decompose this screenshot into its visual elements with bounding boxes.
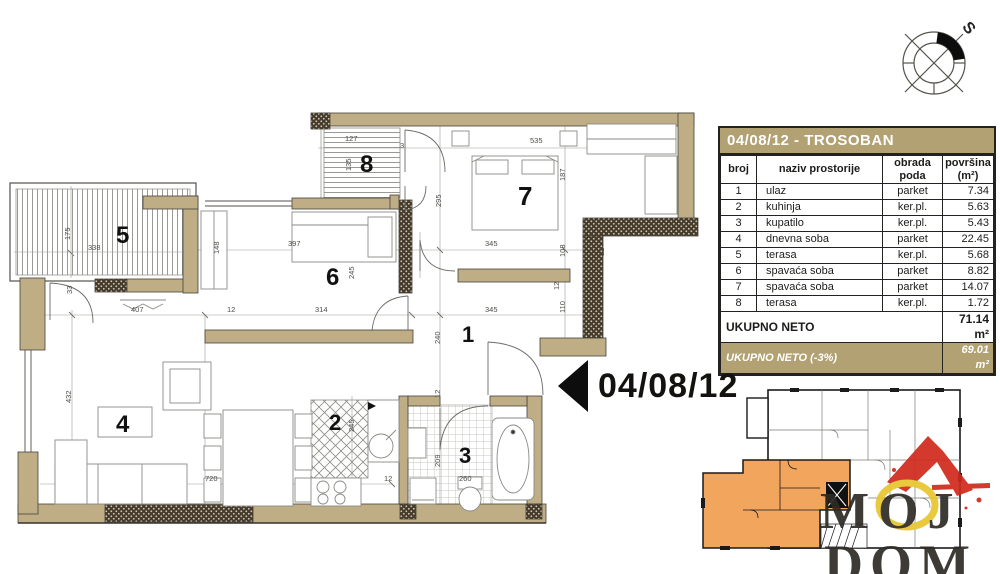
left-arrow-icon	[558, 360, 588, 412]
dim-label: 338	[88, 243, 101, 252]
total-value: 71.14 m²	[943, 312, 994, 343]
dim-label: 295	[434, 194, 443, 207]
room-label-6: 6	[326, 264, 339, 291]
cell-broj: 1	[721, 184, 757, 200]
table-row: 1 ulaz parket 7.34	[721, 184, 994, 200]
cell-povrsina: 22.45	[943, 232, 994, 248]
dim-label: 260	[459, 474, 472, 483]
cell-povrsina: 7.34	[943, 184, 994, 200]
cell-broj: 5	[721, 248, 757, 264]
dim-label: 535	[530, 136, 543, 145]
dim-label: 720	[205, 474, 218, 483]
cell-obrada: parket	[883, 280, 943, 296]
room-label-3: 3	[459, 443, 471, 468]
table-header-row: broj naziv prostorije obrada poda površi…	[721, 156, 994, 184]
room-label-4: 4	[116, 411, 130, 438]
cell-naziv: dnevna soba	[757, 232, 883, 248]
floor-plan: 1 2 3 4 5 6 7 8 175 338 33 407 12 314 34…	[0, 0, 710, 574]
dim-label: 345	[485, 239, 498, 248]
col-header-broj: broj	[721, 156, 757, 184]
cell-broj: 4	[721, 232, 757, 248]
cell-obrada: ker.pl.	[883, 200, 943, 216]
dim-label: 127	[345, 134, 358, 143]
net-label: UKUPNO NETO (-3%)	[721, 343, 943, 374]
table-row: 4 dnevna soba parket 22.45	[721, 232, 994, 248]
dim-label: 245	[347, 419, 356, 432]
dim-label: 240	[433, 331, 442, 344]
dim-label: 12	[597, 248, 606, 256]
room-label-5: 5	[116, 222, 129, 249]
table-row: 7 spavaća soba parket 14.07	[721, 280, 994, 296]
table-row: 2 kuhinja ker.pl. 5.63	[721, 200, 994, 216]
logo-line1: MOJ	[820, 483, 963, 540]
dim-label: 148	[212, 241, 221, 254]
dim-label: 187	[558, 168, 567, 181]
cell-obrada: parket	[883, 232, 943, 248]
dim-label: 12	[552, 282, 561, 290]
area-table: 04/08/12 - TROSOBAN broj naziv prostorij…	[718, 126, 996, 376]
dim-label: 432	[64, 390, 73, 403]
dim-label: 108	[558, 244, 567, 257]
cell-naziv: spavaća soba	[757, 280, 883, 296]
cell-obrada: ker.pl.	[883, 248, 943, 264]
cell-broj: 3	[721, 216, 757, 232]
cell-naziv: spavaća soba	[757, 264, 883, 280]
cell-obrada: ker.pl.	[883, 296, 943, 312]
dim-label: 12	[384, 474, 392, 483]
col-header-povrsina: površina (m²)	[943, 156, 994, 184]
table-row: 6 spavaća soba parket 8.82	[721, 264, 994, 280]
cell-obrada: parket	[883, 264, 943, 280]
cell-povrsina: 8.82	[943, 264, 994, 280]
dim-label: 135	[344, 158, 353, 171]
dim-label: 12	[433, 390, 442, 398]
room-label-8: 8	[360, 151, 373, 178]
dim-label: 397	[288, 239, 301, 248]
dim-label: 33	[65, 286, 74, 294]
table-row: 8 terasa ker.pl. 1.72	[721, 296, 994, 312]
cell-povrsina: 5.68	[943, 248, 994, 264]
cell-naziv: terasa	[757, 296, 883, 312]
cell-naziv: terasa	[757, 248, 883, 264]
dim-label: 12	[227, 305, 235, 314]
dim-label: 314	[315, 305, 328, 314]
logo-line2: DOM	[824, 534, 977, 574]
room-label-7: 7	[518, 181, 532, 211]
mojdom-logo: MOJ DOM	[810, 424, 1000, 574]
cell-naziv: kupatilo	[757, 216, 883, 232]
cell-naziv: ulaz	[757, 184, 883, 200]
room-label-1: 1	[462, 322, 474, 347]
page: 1 2 3 4 5 6 7 8 175 338 33 407 12 314 34…	[0, 0, 1000, 574]
net-value: 69.01 m²	[943, 343, 994, 374]
compass-icon: S	[894, 14, 986, 108]
total-label: UKUPNO NETO	[721, 312, 943, 343]
dim-label: 407	[131, 305, 144, 314]
table-row: 3 kupatilo ker.pl. 5.43	[721, 216, 994, 232]
dim-label: 175	[63, 227, 72, 240]
cell-broj: 8	[721, 296, 757, 312]
cell-broj: 7	[721, 280, 757, 296]
cell-povrsina: 1.72	[943, 296, 994, 312]
cell-povrsina: 14.07	[943, 280, 994, 296]
cell-obrada: ker.pl.	[883, 216, 943, 232]
cell-broj: 2	[721, 200, 757, 216]
dim-label: 3	[400, 141, 404, 150]
cell-obrada: parket	[883, 184, 943, 200]
dim-label: 110	[558, 301, 567, 313]
dim-label: 245	[347, 266, 356, 279]
cell-povrsina: 5.43	[943, 216, 994, 232]
cell-povrsina: 5.63	[943, 200, 994, 216]
dim-label: 345	[485, 305, 498, 314]
dim-label: 209	[433, 454, 442, 467]
cell-naziv: kuhinja	[757, 200, 883, 216]
table-row: 5 terasa ker.pl. 5.68	[721, 248, 994, 264]
table-title: 04/08/12 - TROSOBAN	[720, 128, 994, 155]
cell-broj: 6	[721, 264, 757, 280]
col-header-obrada: obrada poda	[883, 156, 943, 184]
col-header-naziv: naziv prostorije	[757, 156, 883, 184]
total-row: UKUPNO NETO 71.14 m²	[721, 312, 994, 343]
room-label-2: 2	[329, 410, 341, 435]
net-row: UKUPNO NETO (-3%) 69.01 m²	[721, 343, 994, 374]
